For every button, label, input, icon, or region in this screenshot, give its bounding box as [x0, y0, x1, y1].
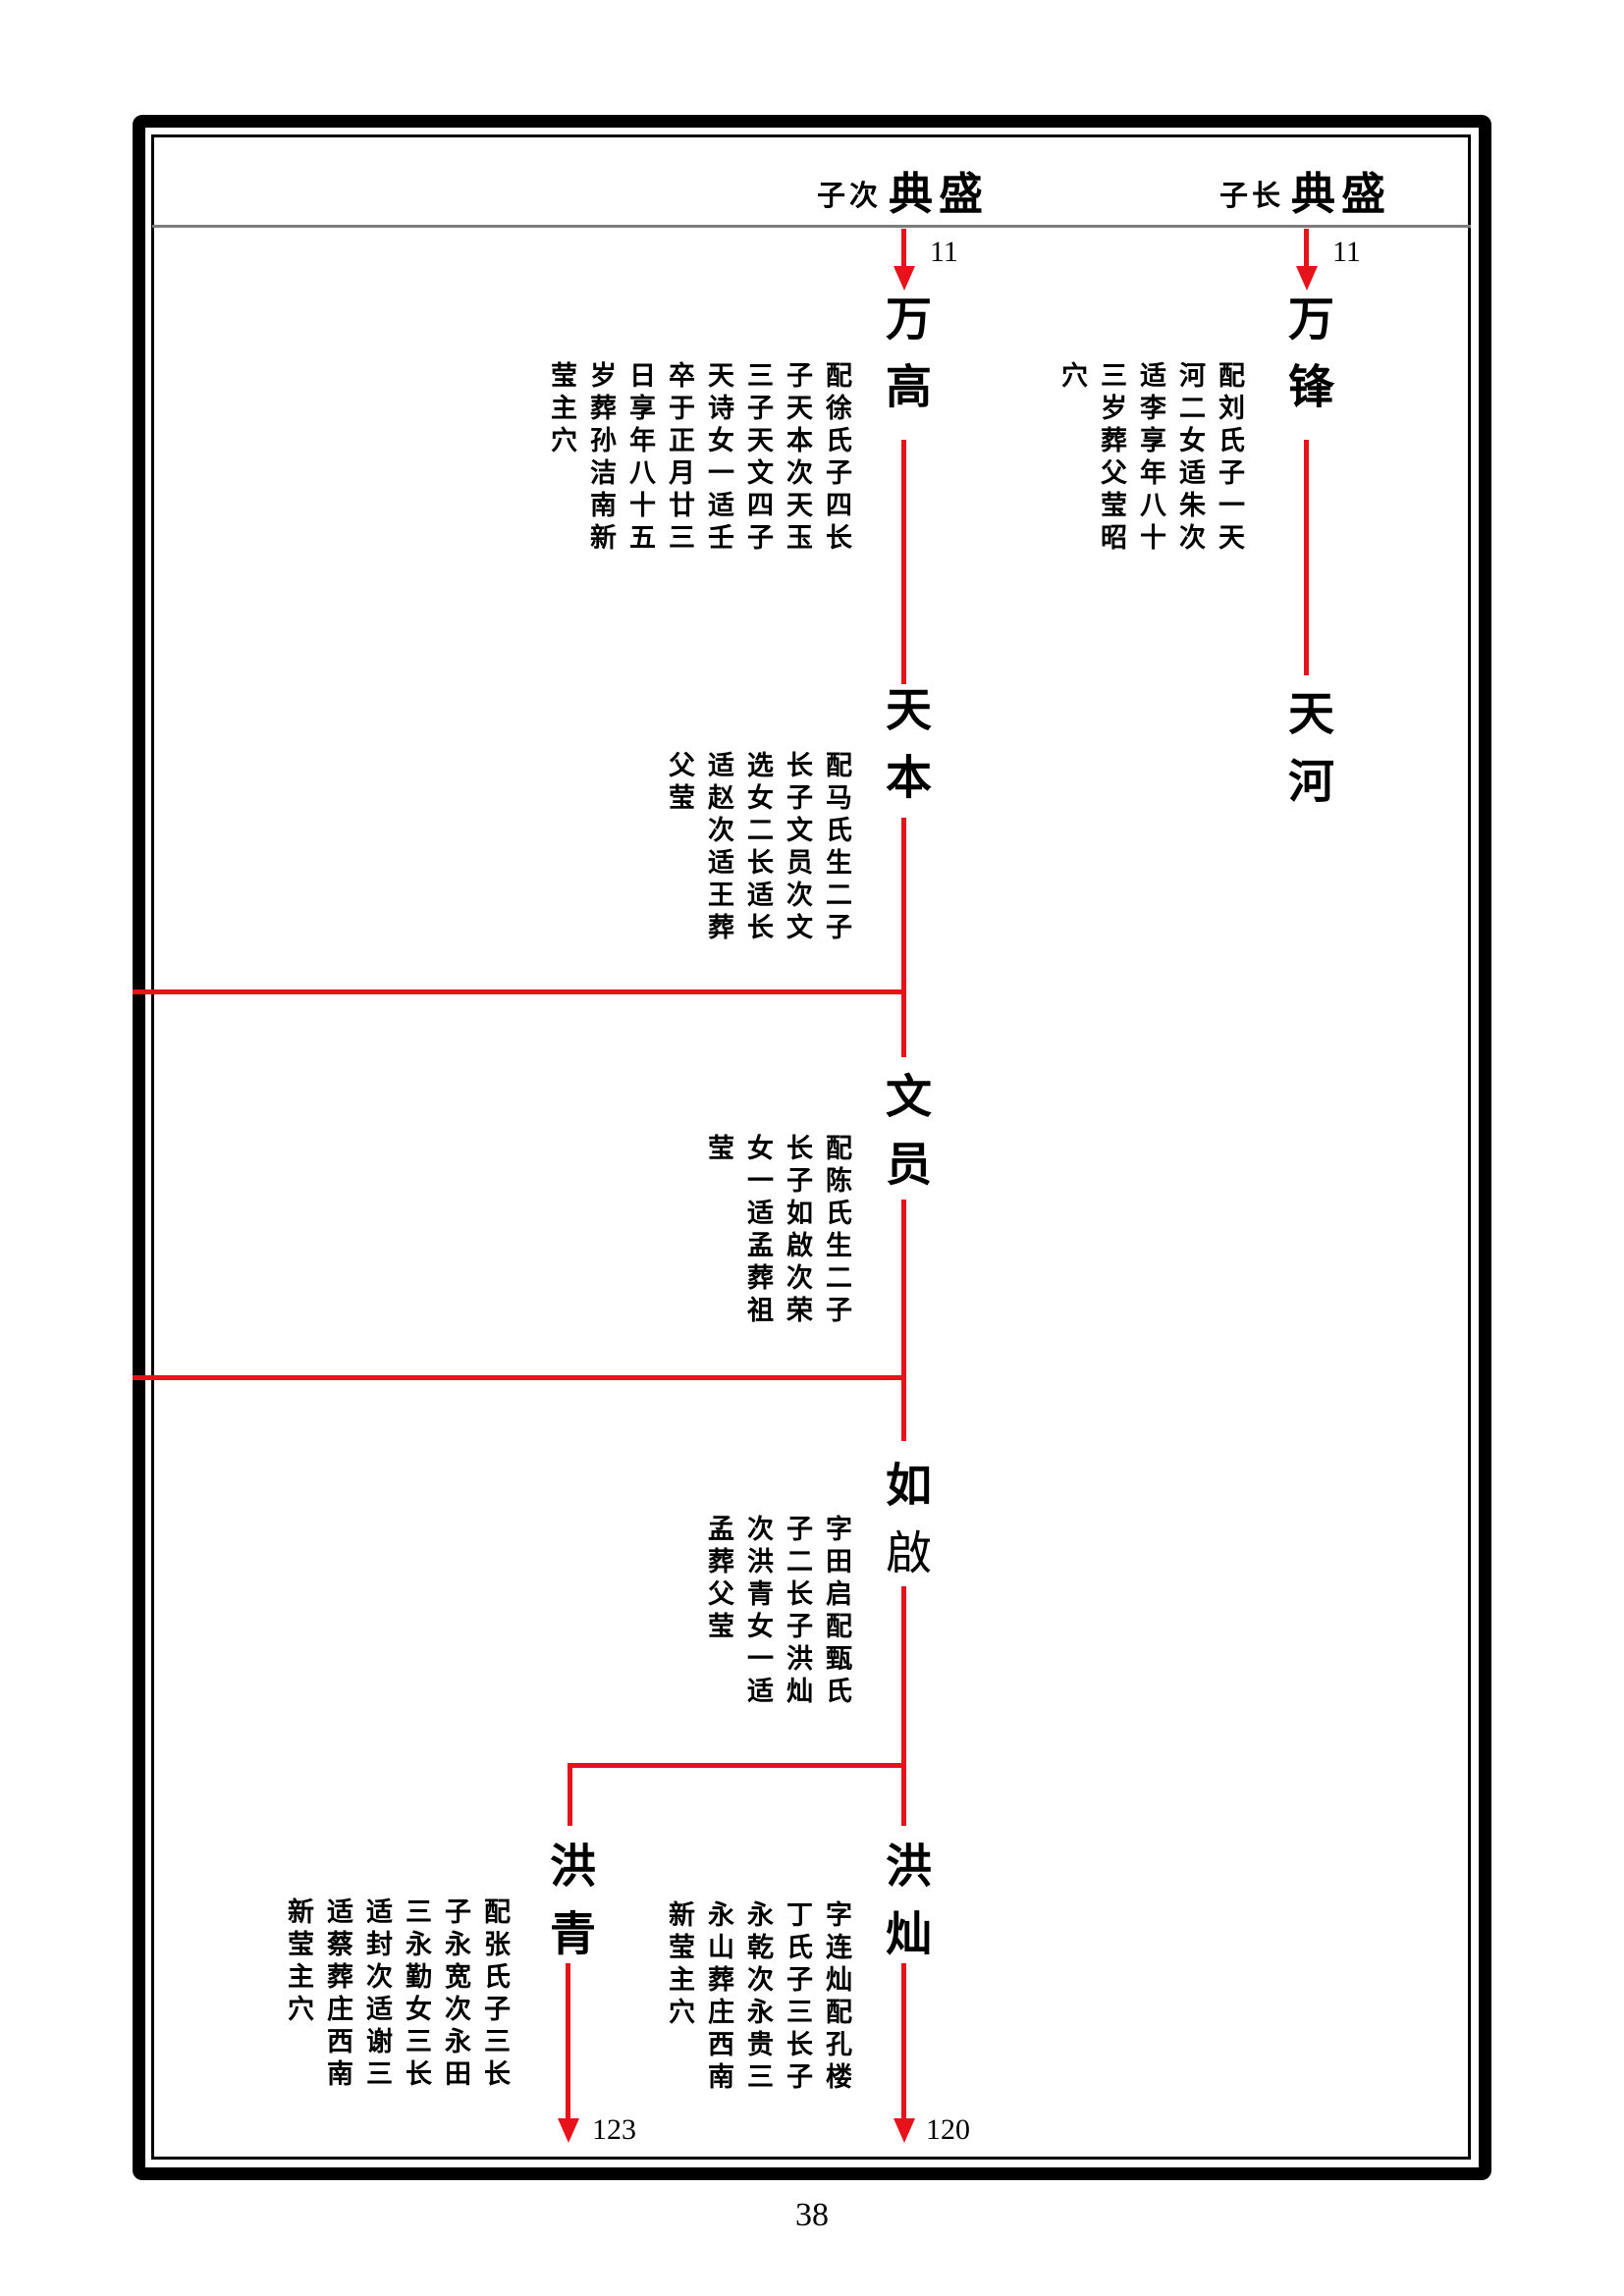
- person-name-ruqi-first: 如: [878, 1461, 929, 1528]
- header-right-ancestor-name: 典盛: [1291, 158, 1391, 222]
- detail-column: 永山葬庄西南: [699, 1900, 738, 2095]
- connector-tianben-wenyuan: [901, 818, 906, 1057]
- detail-column: 女一适孟葬祖: [738, 1134, 778, 1328]
- detail-column: 字连灿配孔楼: [817, 1900, 856, 2095]
- detail-column: 孟葬父莹: [699, 1515, 738, 1709]
- detail-column: 岁葬孙洁南新: [581, 361, 621, 556]
- person-name-wanfeng: 万锋: [1280, 294, 1331, 430]
- person-details-wenyuan: 配陈氏生二子 长子如啟次荣 女一适孟葬祖 莹: [699, 1134, 856, 1328]
- detail-column: 配张氏子三长: [475, 1897, 514, 2092]
- connector-wenyuan-ruqi: [901, 1200, 906, 1441]
- detail-column: 子二长子洪灿: [778, 1515, 817, 1709]
- person-name-hongcan: 洪灿: [878, 1842, 929, 1977]
- detail-column: 子永宽次永田: [436, 1897, 475, 2092]
- detail-column: 三永勤女三长: [397, 1897, 436, 2092]
- person-name-hongqing: 洪青: [542, 1842, 593, 1977]
- person-details-hongqing: 配张氏子三长 子永宽次永田 三永勤女三长 适封次适谢三 适蔡葬庄西南 新莹主穴: [279, 1897, 514, 2092]
- detail-column: 日享年八十五: [621, 361, 660, 556]
- detail-column: 次洪青女一适: [738, 1515, 778, 1709]
- generation-number-bottom-left: 123: [592, 2113, 636, 2147]
- connector-wangao-tianben: [901, 440, 906, 684]
- detail-column: 新莹主穴: [660, 1900, 699, 2095]
- detail-column: 河二女适朱次: [1170, 361, 1210, 556]
- person-details-ruqi: 字田启配甄氏 子二长子洪灿 次洪青女一适 孟葬父莹: [699, 1515, 856, 1709]
- detail-column: 适蔡葬庄西南: [318, 1897, 357, 2092]
- detail-column: 新莹主穴: [279, 1897, 318, 2092]
- branch-line-left-2: [133, 1375, 906, 1380]
- detail-column: 丁氏子三长子: [778, 1900, 817, 2095]
- detail-column: 配陈氏生二子: [817, 1134, 856, 1328]
- person-details-wangao: 配徐氏子四长 子天本次天玉 三子天文四子 天诗女一适壬 卒于正月廿三 日享年八十…: [542, 361, 856, 556]
- connector-wanfeng-tianhe: [1304, 440, 1309, 675]
- down-arrow-icon-top-left: [893, 266, 915, 291]
- down-arrow-icon-top-right: [1296, 266, 1318, 291]
- down-arrow-shaft-top-left: [901, 229, 906, 268]
- detail-column: 长子文员次文: [778, 751, 817, 945]
- generation-number-top-right: 11: [1332, 236, 1361, 269]
- person-details-tianben: 配马氏生二子 长子文员次文 选女二长适长 适赵次适王葬 父莹: [660, 751, 856, 945]
- detail-column: 适李享年八十: [1131, 361, 1170, 556]
- connector-ruqi-hongcan: [901, 1586, 906, 1826]
- generation-number-bottom-right: 120: [926, 2113, 970, 2147]
- branch-line-hongqing: [568, 1763, 906, 1768]
- person-name-wangao: 万高: [878, 294, 929, 430]
- header-left-ancestor-name: 典盛: [889, 158, 989, 222]
- person-name-tianben: 天本: [878, 685, 929, 821]
- generation-number-top-left: 11: [930, 236, 958, 269]
- detail-column: 卒于正月廿三: [660, 361, 699, 556]
- down-arrow-shaft-bottom-right: [901, 1963, 906, 2120]
- detail-column: 三岁葬父莹昭: [1092, 361, 1131, 556]
- person-details-hongcan: 字连灿配孔楼 丁氏子三长子 永乾次永贵三 永山葬庄西南 新莹主穴: [660, 1900, 856, 2095]
- person-name-ruqi: 如啟: [878, 1461, 929, 1596]
- detail-column: 配马氏生二子: [817, 751, 856, 945]
- down-arrow-icon-bottom-right: [893, 2118, 915, 2143]
- detail-column: 莹: [699, 1134, 738, 1328]
- detail-column: 字田启配甄氏: [817, 1515, 856, 1709]
- detail-column: 莹主穴: [542, 361, 581, 556]
- detail-column: 天诗女一适壬: [699, 361, 738, 556]
- genealogy-page: { "colors": { "line_red": "#e8121b", "di…: [0, 0, 1624, 2296]
- detail-column: 三子天文四子: [738, 361, 778, 556]
- detail-column: 永乾次永贵三: [738, 1900, 778, 2095]
- detail-column: 父莹: [660, 751, 699, 945]
- connector-drop-hongqing: [568, 1763, 572, 1826]
- detail-column: 适赵次适王葬: [699, 751, 738, 945]
- person-name-ruqi-second: 啟: [878, 1528, 929, 1596]
- branch-line-left-1: [133, 989, 906, 994]
- person-name-wenyuan: 文员: [878, 1072, 929, 1207]
- detail-column: 子天本次天玉: [778, 361, 817, 556]
- header-divider-line: [152, 225, 1471, 228]
- person-name-tianhe: 天河: [1280, 689, 1331, 825]
- detail-column: 选女二长适长: [738, 751, 778, 945]
- detail-column: 配刘氏子一天: [1210, 361, 1249, 556]
- down-arrow-icon-bottom-left: [558, 2118, 579, 2143]
- detail-column: 长子如啟次荣: [778, 1134, 817, 1328]
- detail-column: 适封次适谢三: [357, 1897, 397, 2092]
- detail-column: 配徐氏子四长: [817, 361, 856, 556]
- down-arrow-shaft-bottom-left: [566, 1963, 570, 2120]
- header-left-relation-label: 子次: [817, 173, 882, 214]
- detail-column: 穴: [1053, 361, 1092, 556]
- header-right-relation-label: 子长: [1219, 173, 1284, 214]
- down-arrow-shaft-top-right: [1304, 229, 1309, 268]
- page-number: 38: [0, 2197, 1624, 2234]
- person-details-wanfeng: 配刘氏子一天 河二女适朱次 适李享年八十 三岁葬父莹昭 穴: [1053, 361, 1249, 556]
